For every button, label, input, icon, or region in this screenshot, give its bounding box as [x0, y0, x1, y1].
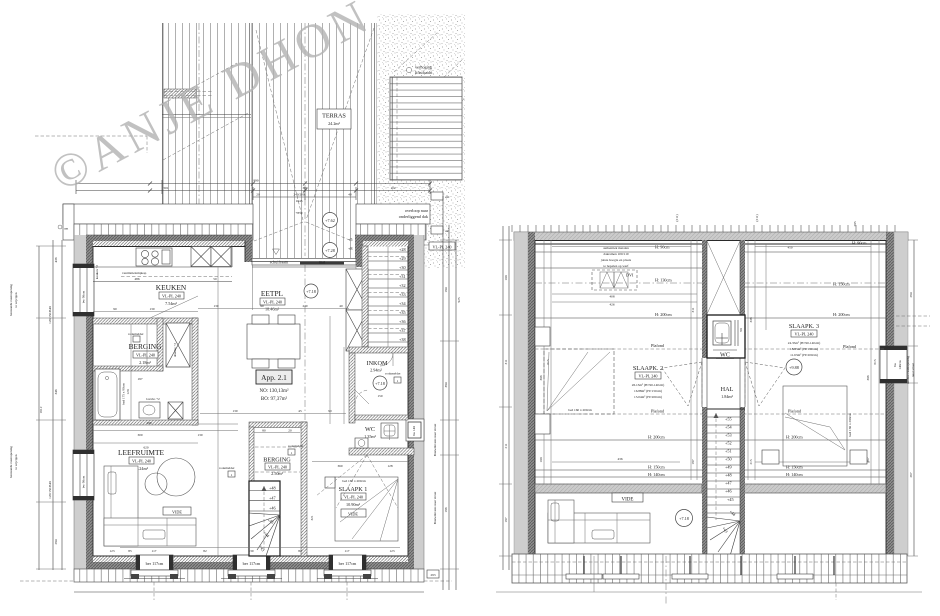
svg-text:schuifraam: schuifraam: [270, 260, 289, 265]
svg-text:436: 436: [617, 457, 622, 461]
svg-text:436: 436: [54, 257, 58, 262]
svg-text:EETPL: EETPL: [261, 289, 284, 298]
svg-text:mat: mat: [319, 260, 326, 265]
svg-text:311: 311: [504, 359, 508, 364]
svg-text:85: 85: [128, 549, 132, 553]
svg-text:100: 100: [539, 457, 543, 462]
svg-text:117: 117: [152, 549, 157, 553]
svg-text:+7.18: +7.18: [679, 516, 689, 521]
svg-text:liftschacht: liftschacht: [415, 70, 433, 75]
svg-text:50: 50: [213, 277, 217, 281]
svg-text:197: 197: [137, 377, 142, 381]
svg-text:426: 426: [609, 303, 614, 307]
svg-text:2.18m²: 2.18m²: [139, 360, 152, 365]
svg-text:450: 450: [787, 246, 792, 250]
svg-text:SLAAPK 1: SLAAPK 1: [339, 486, 368, 493]
svg-text:620: 620: [143, 446, 148, 450]
svg-text:10.90m²: 10.90m²: [346, 502, 361, 507]
svg-text:ber 117cm: ber 117cm: [243, 561, 261, 566]
svg-text:338: 338: [749, 317, 753, 322]
svg-text:WC: WC: [720, 352, 730, 359]
svg-text:267: 267: [909, 472, 913, 477]
svg-text:102: 102: [390, 186, 395, 190]
svg-text:+45: +45: [727, 497, 734, 502]
svg-text:24.35m² (H>90-140cm): 24.35m² (H>90-140cm): [788, 341, 821, 345]
svg-text:615: 615: [873, 359, 877, 364]
svg-text:2.94m²: 2.94m²: [370, 368, 383, 373]
svg-text:120: 120: [126, 389, 130, 394]
svg-text:te wijzigen: te wijzigen: [14, 454, 18, 469]
svg-text:juiste hoogte en plaats: juiste hoogte en plaats: [600, 258, 632, 262]
svg-text:+36: +36: [399, 319, 406, 324]
svg-text:bed 160 x 200cm: bed 160 x 200cm: [342, 479, 366, 483]
svg-text:311: 311: [691, 307, 695, 312]
svg-text:360: 360: [337, 464, 342, 468]
svg-text:+7.18: +7.18: [375, 381, 385, 386]
svg-text:TERRAS: TERRAS: [322, 113, 346, 120]
svg-text:240: 240: [302, 304, 307, 308]
svg-text:16.88m² (H>150cm): 16.88m² (H>150cm): [634, 389, 662, 393]
svg-text:2.50m²: 2.50m²: [271, 471, 284, 476]
svg-text:bed 160 x 200cm: bed 160 x 200cm: [848, 413, 852, 437]
svg-text:bed 160 x 200cm: bed 160 x 200cm: [568, 408, 592, 412]
svg-text:bw 140: bw 140: [412, 426, 416, 436]
svg-text:+54: +54: [725, 425, 732, 430]
svg-text:H: 140cm: H: 140cm: [786, 472, 803, 477]
svg-text:120/150 B40: 120/150 B40: [48, 306, 52, 324]
svg-text:20: 20: [256, 193, 260, 197]
svg-text:306: 306: [539, 375, 543, 380]
svg-text:ventilatielampkap: ventilatielampkap: [122, 271, 147, 275]
svg-text:overloop naar: overloop naar: [405, 208, 429, 213]
svg-text:nieuwe raamopening: nieuwe raamopening: [906, 356, 910, 385]
svg-text:VL-PL 240: VL-PL 240: [344, 495, 363, 500]
svg-text:240/200: 240/200: [293, 193, 304, 197]
svg-text:80: 80: [262, 429, 266, 433]
svg-text:BERGING: BERGING: [263, 457, 291, 464]
svg-text:+37: +37: [399, 328, 406, 333]
svg-text:140cm: 140cm: [898, 360, 902, 370]
svg-text:WC: WC: [365, 426, 375, 433]
svg-text:300: 300: [302, 186, 307, 190]
svg-text:+51: +51: [725, 449, 732, 454]
svg-text:H: 130cm: H: 130cm: [655, 278, 672, 283]
svg-text:SLAAPK. 3: SLAAPK. 3: [789, 323, 819, 330]
svg-text:117: 117: [345, 549, 350, 553]
svg-text:H: 200cm: H: 200cm: [655, 312, 672, 317]
svg-text:+46: +46: [725, 489, 732, 494]
svg-text:HAL: HAL: [721, 386, 734, 393]
svg-text:VL-PL 240: VL-PL 240: [432, 245, 451, 250]
svg-text:rookmelder: rookmelder: [219, 466, 235, 470]
svg-text:293: 293: [430, 573, 435, 577]
svg-text:ber 117cm: ber 117cm: [146, 561, 164, 566]
svg-text:306: 306: [866, 375, 870, 380]
svg-text:cm: cm: [445, 195, 450, 199]
svg-text:DVI: DVI: [626, 273, 634, 278]
svg-text:lavabo +2: lavabo +2: [146, 397, 160, 401]
svg-text:VIDE: VIDE: [172, 510, 182, 515]
svg-text:H: 90cm: H: 90cm: [655, 245, 670, 250]
svg-text:onderliggend dak: onderliggend dak: [399, 214, 429, 219]
svg-text:cm: cm: [64, 227, 69, 231]
svg-text:INKOM: INKOM: [367, 360, 388, 367]
svg-text:20: 20: [288, 429, 292, 433]
svg-text:1: 1: [231, 473, 233, 477]
svg-text:13.04m² (H>200cm): 13.04m² (H>200cm): [634, 395, 662, 399]
svg-text:ber 117cm: ber 117cm: [339, 561, 357, 566]
svg-text:Bouwdovens naar straat: Bouwdovens naar straat: [433, 424, 437, 457]
svg-text:+53: +53: [725, 433, 732, 438]
svg-text:186: 186: [444, 507, 448, 512]
svg-text:bad 175 x 90cm: bad 175 x 90cm: [122, 383, 126, 405]
svg-text:H: 200cm: H: 200cm: [648, 435, 665, 440]
svg-text:H: 150cm: H: 150cm: [648, 465, 665, 470]
svg-text:rookmelder: rookmelder: [385, 372, 401, 376]
svg-text:Plafond: Plafond: [788, 409, 802, 414]
svg-text:Plafond: Plafond: [651, 343, 665, 348]
svg-text:90: 90: [113, 307, 117, 311]
svg-text:205: 205: [853, 221, 857, 226]
svg-text:H: 150cm: H: 150cm: [786, 465, 803, 470]
svg-text:82: 82: [203, 549, 207, 553]
svg-text:+55: +55: [725, 417, 732, 422]
svg-text:290: 290: [146, 421, 151, 425]
svg-text:bestaande raamopening: bestaande raamopening: [9, 284, 13, 316]
svg-text:123: 123: [109, 549, 114, 553]
svg-text:(211): (211): [755, 214, 759, 221]
svg-text:naar straat: naar straat: [911, 363, 915, 377]
svg-text:130: 130: [232, 409, 237, 413]
svg-text:+7.28: +7.28: [325, 248, 335, 253]
svg-text:284: 284: [54, 539, 58, 544]
svg-text:+29: +29: [399, 256, 406, 261]
svg-text:130: 130: [248, 549, 253, 553]
svg-text:90: 90: [260, 304, 264, 308]
svg-text:150: 150: [377, 394, 382, 398]
svg-text:SLAAPK. 2: SLAAPK. 2: [633, 365, 663, 372]
svg-text:Bouwdovens naar straat: Bouwdovens naar straat: [433, 492, 437, 525]
svg-text:H: 90cm: H: 90cm: [852, 241, 867, 246]
svg-text:1643: 1643: [296, 199, 303, 203]
svg-text:+7.62: +7.62: [325, 218, 335, 223]
svg-text:+49: +49: [725, 465, 732, 470]
svg-text:(211): (211): [675, 214, 679, 221]
svg-text:NO: 130,13m²: NO: 130,13m²: [260, 388, 290, 394]
svg-text:VL-PL 240: VL-PL 240: [794, 332, 813, 337]
svg-text:384: 384: [444, 382, 448, 387]
svg-text:11.63m² (H>200cm): 11.63m² (H>200cm): [790, 353, 818, 357]
svg-text:+48: +48: [725, 473, 732, 478]
svg-text:KEUKEN: KEUKEN: [156, 283, 187, 292]
svg-text:VL-PL 240: VL-PL 240: [132, 459, 151, 464]
svg-text:+9.88: +9.88: [789, 365, 799, 370]
svg-text:215: 215: [749, 459, 753, 464]
svg-text:H: 140cm: H: 140cm: [648, 472, 665, 477]
svg-text:VL-PL 240: VL-PL 240: [162, 294, 181, 299]
svg-text:18.46m²: 18.46m²: [265, 307, 280, 312]
svg-text:H: 150cm: H: 150cm: [833, 282, 850, 287]
svg-text:+52: +52: [725, 441, 732, 446]
svg-text:1: 1: [291, 451, 293, 455]
svg-text:130: 130: [197, 433, 202, 437]
svg-text:+46: +46: [269, 506, 276, 511]
svg-text:+30: +30: [399, 265, 406, 270]
svg-text:120/150 B40: 120/150 B40: [48, 481, 52, 499]
svg-text:211: 211: [504, 443, 508, 448]
svg-text:1612: 1612: [39, 406, 43, 413]
svg-text:+28: +28: [399, 247, 406, 252]
svg-text:486: 486: [134, 277, 139, 281]
svg-text:VL-PL 240: VL-PL 240: [136, 353, 155, 358]
svg-text:+8: +8: [348, 246, 352, 251]
svg-text:Plafond: Plafond: [651, 409, 665, 414]
svg-text:408: 408: [609, 295, 614, 299]
svg-text:18.83m² (H>150cm): 18.83m² (H>150cm): [790, 347, 818, 351]
svg-text:verhoging: verhoging: [415, 65, 433, 70]
svg-text:douche +2: douche +2: [173, 343, 177, 358]
svg-text:+47: +47: [725, 481, 732, 486]
svg-text:1: 1: [397, 379, 399, 383]
svg-text:40: 40: [348, 193, 352, 197]
svg-text:+38: +38: [399, 337, 406, 342]
svg-text:+7.18: +7.18: [306, 289, 316, 294]
svg-text:346: 346: [54, 389, 58, 394]
svg-text:187: 187: [504, 517, 508, 522]
svg-text:H: 200cm: H: 200cm: [833, 312, 850, 317]
svg-text:7.54m²: 7.54m²: [165, 301, 178, 306]
svg-text:40: 40: [339, 304, 343, 308]
svg-text:VL-PL 240: VL-PL 240: [638, 374, 657, 379]
svg-text:615: 615: [546, 359, 550, 364]
svg-text:BERGING: BERGING: [129, 342, 163, 351]
svg-text:te wijzigen: te wijzigen: [14, 292, 18, 307]
svg-text:App. 2.1: App. 2.1: [261, 373, 287, 382]
svg-text:bw: bw: [893, 362, 897, 367]
svg-text:keuken +2: keuken +2: [95, 265, 99, 280]
svg-text:187: 187: [691, 459, 695, 464]
svg-text:rookmelder: rookmelder: [288, 444, 304, 448]
svg-text:+850: +850: [296, 211, 303, 215]
svg-text:+35: +35: [399, 310, 406, 315]
svg-text:1.84m²: 1.84m²: [721, 394, 734, 399]
svg-text:+47: +47: [269, 496, 276, 501]
svg-text:LEEFRUIMTE: LEEFRUIMTE: [118, 448, 164, 457]
svg-text:H: 200cm: H: 200cm: [786, 435, 803, 440]
svg-text:+48: +48: [269, 486, 276, 491]
svg-text:VL-PL 240: VL-PL 240: [268, 465, 287, 470]
svg-text:BO: 97,37m²: BO: 97,37m²: [261, 396, 288, 402]
svg-text:bw 90cm: bw 90cm: [82, 290, 86, 303]
svg-text:925: 925: [457, 297, 461, 302]
svg-text:45: 45: [298, 409, 302, 413]
svg-text:100: 100: [504, 275, 508, 280]
svg-text:128: 128: [387, 464, 392, 468]
svg-text:184: 184: [444, 287, 448, 292]
svg-text:+50: +50: [725, 457, 732, 462]
svg-text:+5: +5: [348, 237, 352, 242]
svg-text:+32: +32: [399, 283, 406, 288]
svg-text:321: 321: [310, 515, 314, 520]
svg-text:26.13m² (H>90-140cm): 26.13m² (H>90-140cm): [632, 383, 665, 387]
svg-text:130: 130: [149, 307, 154, 311]
svg-text:dakramen 100/110: dakramen 100/110: [603, 252, 629, 256]
svg-text:VIDE: VIDE: [622, 498, 634, 503]
svg-text:te bepalen op werf: te bepalen op werf: [603, 264, 629, 268]
svg-text:294: 294: [909, 292, 913, 297]
svg-text:+31: +31: [399, 274, 406, 279]
svg-text:+33: +33: [399, 292, 406, 297]
svg-text:82: 82: [298, 549, 302, 553]
svg-text:24.2m²: 24.2m²: [328, 121, 341, 126]
svg-text:bestaande raamopening: bestaande raamopening: [9, 446, 13, 478]
svg-text:123: 123: [389, 549, 394, 553]
svg-text:501: 501: [163, 186, 168, 190]
svg-text:VL-PL 240: VL-PL 240: [263, 300, 282, 305]
svg-text:Plafond: Plafond: [843, 344, 857, 349]
svg-text:bw 90cm: bw 90cm: [82, 475, 86, 488]
svg-text:300: 300: [137, 433, 142, 437]
svg-text:90: 90: [739, 328, 743, 332]
svg-text:+34: +34: [399, 301, 406, 306]
svg-text:rookmelder: rookmelder: [128, 332, 144, 336]
